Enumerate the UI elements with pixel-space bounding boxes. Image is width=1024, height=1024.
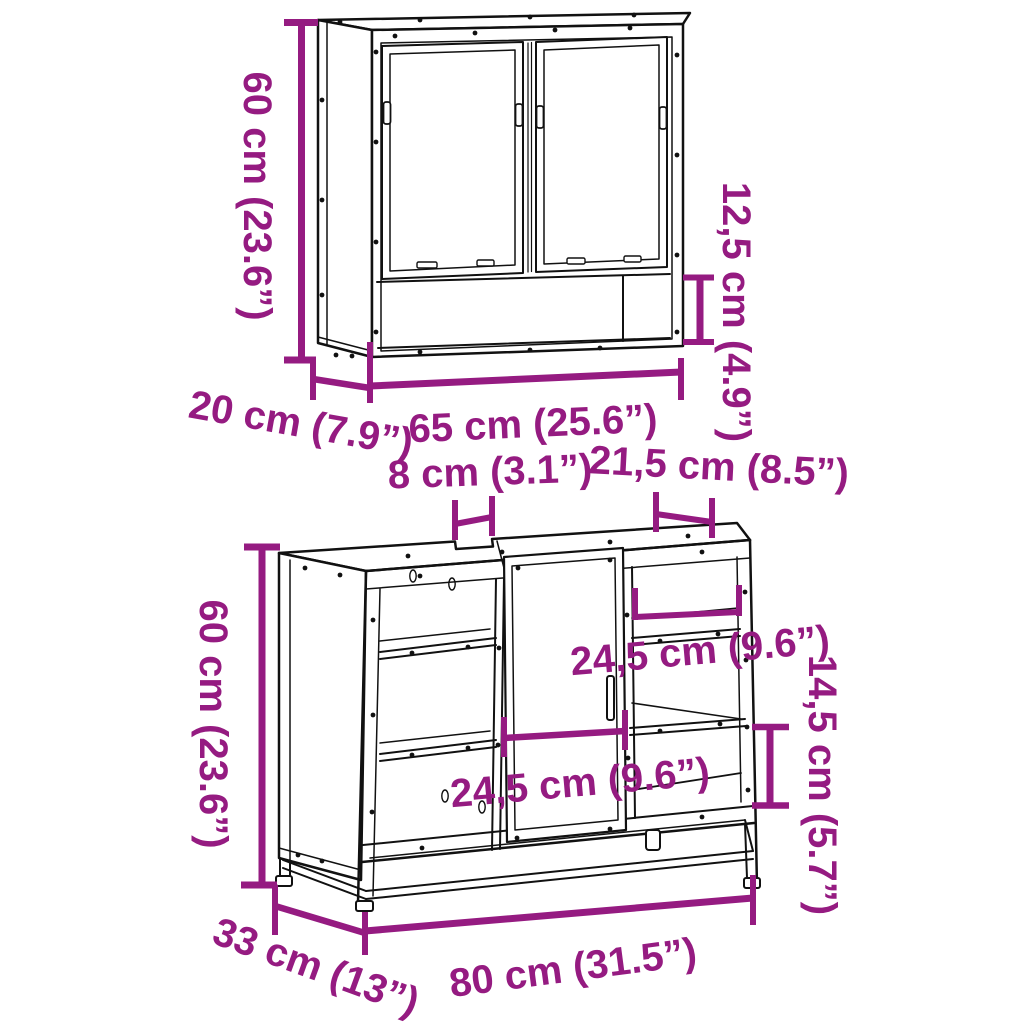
- mirror-width-line: [370, 372, 681, 386]
- vanity-back-left-foot: [276, 876, 292, 886]
- vanity-side-panel: [279, 553, 366, 880]
- vanity-right-post: [750, 540, 757, 886]
- diagram-canvas: 60 cm (23.6”) 20 cm (7.9”) 65 cm (25.6”)…: [0, 0, 1024, 1024]
- product-dimension-diagram: 60 cm (23.6”) 20 cm (7.9”) 65 cm (25.6”)…: [0, 0, 1024, 1024]
- vanity-top-opening-label: 21,5 cm (8.5”): [588, 438, 850, 496]
- mirror-cabinet-drawing: [318, 13, 690, 359]
- vanity-middle-foot: [646, 830, 660, 850]
- vanity-notch-line: [455, 517, 492, 524]
- vanity-left-shelves: [380, 629, 496, 761]
- mirror-door-right: [536, 37, 667, 272]
- vanity-door-handle: [607, 676, 614, 720]
- vanity-top-opening-line: [656, 514, 712, 522]
- mirror-side-panel: [318, 20, 372, 357]
- vanity-depth-line: [275, 906, 365, 933]
- vanity-height-label: 60 cm (23.6”): [191, 599, 235, 848]
- vanity-width-label: 80 cm (31.5”): [447, 930, 700, 1006]
- mirror-shelf-height-label: 12,5 cm (4.9”): [714, 182, 758, 442]
- vanity-shelf-height-label: 14,5 cm (5.7”): [800, 655, 844, 915]
- vanity-notch-label: 8 cm (3.1”): [387, 446, 593, 497]
- mirror-height-label: 60 cm (23.6”): [235, 71, 279, 320]
- vanity-cabinet-drawing: [276, 523, 760, 911]
- vanity-width-line: [365, 898, 753, 931]
- mirror-depth-line: [313, 379, 370, 388]
- vanity-shelf-width-line: [635, 612, 739, 617]
- mirror-door-left: [382, 42, 523, 279]
- mirror-depth-label: 20 cm (7.9”): [186, 383, 417, 466]
- vanity-front-left-foot: [356, 901, 373, 911]
